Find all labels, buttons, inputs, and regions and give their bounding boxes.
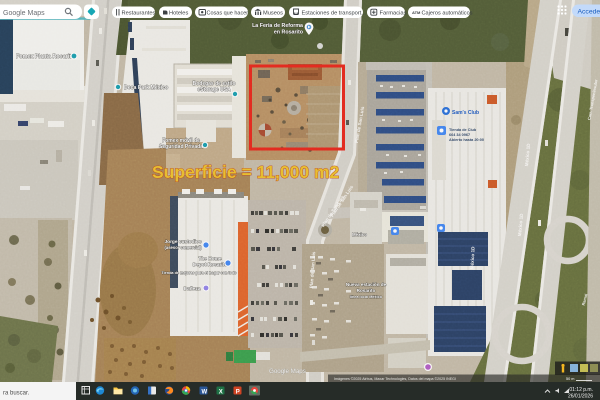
- svg-text:Museos: Museos: [263, 11, 283, 17]
- svg-text:W: W: [202, 389, 208, 395]
- svg-text:ATM: ATM: [412, 10, 421, 15]
- svg-text:Estaciones de transport...: Estaciones de transport...: [302, 11, 367, 17]
- svg-text:Cajeros automáticos: Cajeros automáticos: [422, 11, 473, 17]
- svg-text:Acceder: Acceder: [578, 9, 600, 16]
- svg-text:50 m: 50 m: [566, 377, 574, 381]
- svg-text:Cosas que hacer: Cosas que hacer: [207, 11, 249, 17]
- svg-text:Hoteles: Hoteles: [169, 11, 188, 17]
- svg-text:X: X: [219, 389, 223, 395]
- svg-text:Farmacias: Farmacias: [380, 11, 407, 17]
- svg-text:26/01/2026: 26/01/2026: [568, 394, 593, 400]
- svg-text:01:12 p.m.: 01:12 p.m.: [569, 387, 593, 393]
- svg-text:Imágenes ©2025 Airbus, Maxar T: Imágenes ©2025 Airbus, Maxar Technologie…: [334, 377, 456, 381]
- svg-text:Restaurantes: Restaurantes: [122, 11, 156, 17]
- svg-text:ra buscar.: ra buscar.: [3, 391, 30, 397]
- svg-text:Google Maps: Google Maps: [3, 10, 45, 17]
- svg-text:P: P: [236, 389, 240, 395]
